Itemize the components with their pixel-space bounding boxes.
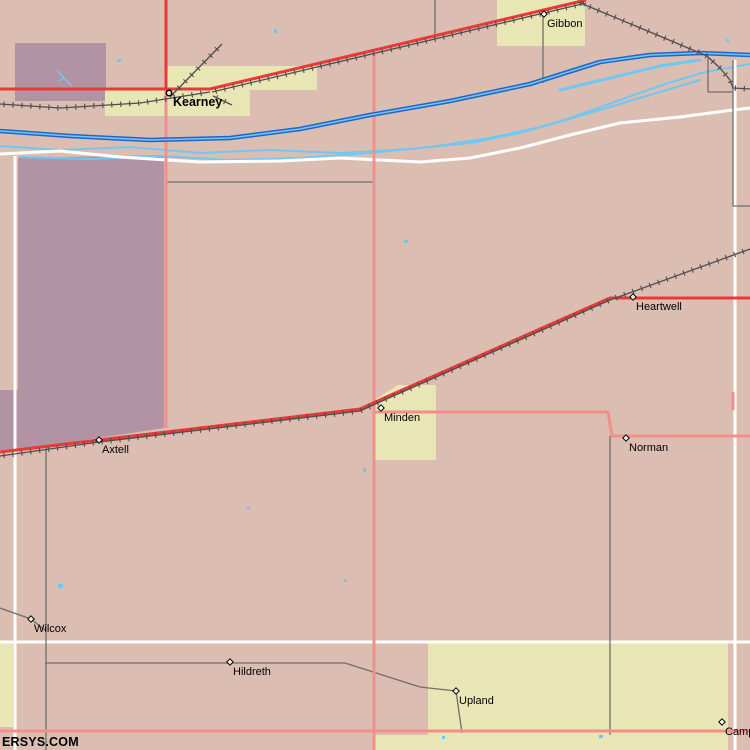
railroad-tick [4,453,5,459]
railroad-tick [200,427,201,433]
map-canvas: KearneyGibbonHeartwellMindenNormanAxtell… [0,0,750,750]
town-label-hildreth: Hildreth [233,666,271,678]
town-label-gibbon: Gibbon [547,18,582,30]
town-label-camp: Camp [725,726,750,738]
railroad-tick [146,434,147,440]
urban-area-west-edge [0,643,13,727]
district-area-northwest [15,43,106,101]
railroad-tick [21,450,22,456]
railroad-tick [307,414,308,420]
railroad-tick [75,443,76,449]
town-label-axtell: Axtell [102,444,129,456]
railroad-tick [173,430,174,436]
railroad-tick [343,410,344,416]
railroad-tick [316,413,317,419]
town-label-heartwell: Heartwell [636,301,682,313]
town-label-kearney: Kearney [173,95,222,109]
county-map: KearneyGibbonHeartwellMindenNormanAxtell… [0,0,750,750]
railroad-tick [245,422,246,428]
railroad-tick [263,420,264,426]
town-label-minden: Minden [384,412,420,424]
railroad-tick [155,432,156,438]
railroad-tick [137,435,138,441]
railroad-tick [236,423,237,429]
railroad-tick [191,428,192,434]
railroad-tick [352,409,353,415]
railroad-tick [289,417,290,423]
town-label-upland: Upland [459,695,494,707]
railroad-tick [254,421,255,427]
railroad-tick [120,437,121,443]
railroad-tick [12,451,13,457]
railroad-tick [298,416,299,422]
railroad-tick [57,445,58,451]
attribution: ERSYS.COM [2,735,79,749]
railroad-tick [227,424,228,430]
town-label-wilcox: Wilcox [34,623,67,635]
railroad-tick [164,431,165,437]
railroad-tick [280,418,281,424]
railroad-tick [182,429,183,435]
railroad-tick [271,419,272,425]
railroad-tick [111,438,112,444]
railroad-tick [218,425,219,431]
railroad-tick [30,449,31,455]
railroad-tick [48,446,49,452]
district-area-west [0,155,164,453]
railroad-tick [334,411,335,417]
railroad-tick [66,444,67,450]
railroad-tick [209,426,210,432]
railroad-tick [39,448,40,454]
railroad-tick [93,440,94,446]
railroad-tick [84,441,85,447]
railroad-tick [128,436,129,442]
railroad-tick [325,412,326,418]
town-label-norman: Norman [629,442,668,454]
